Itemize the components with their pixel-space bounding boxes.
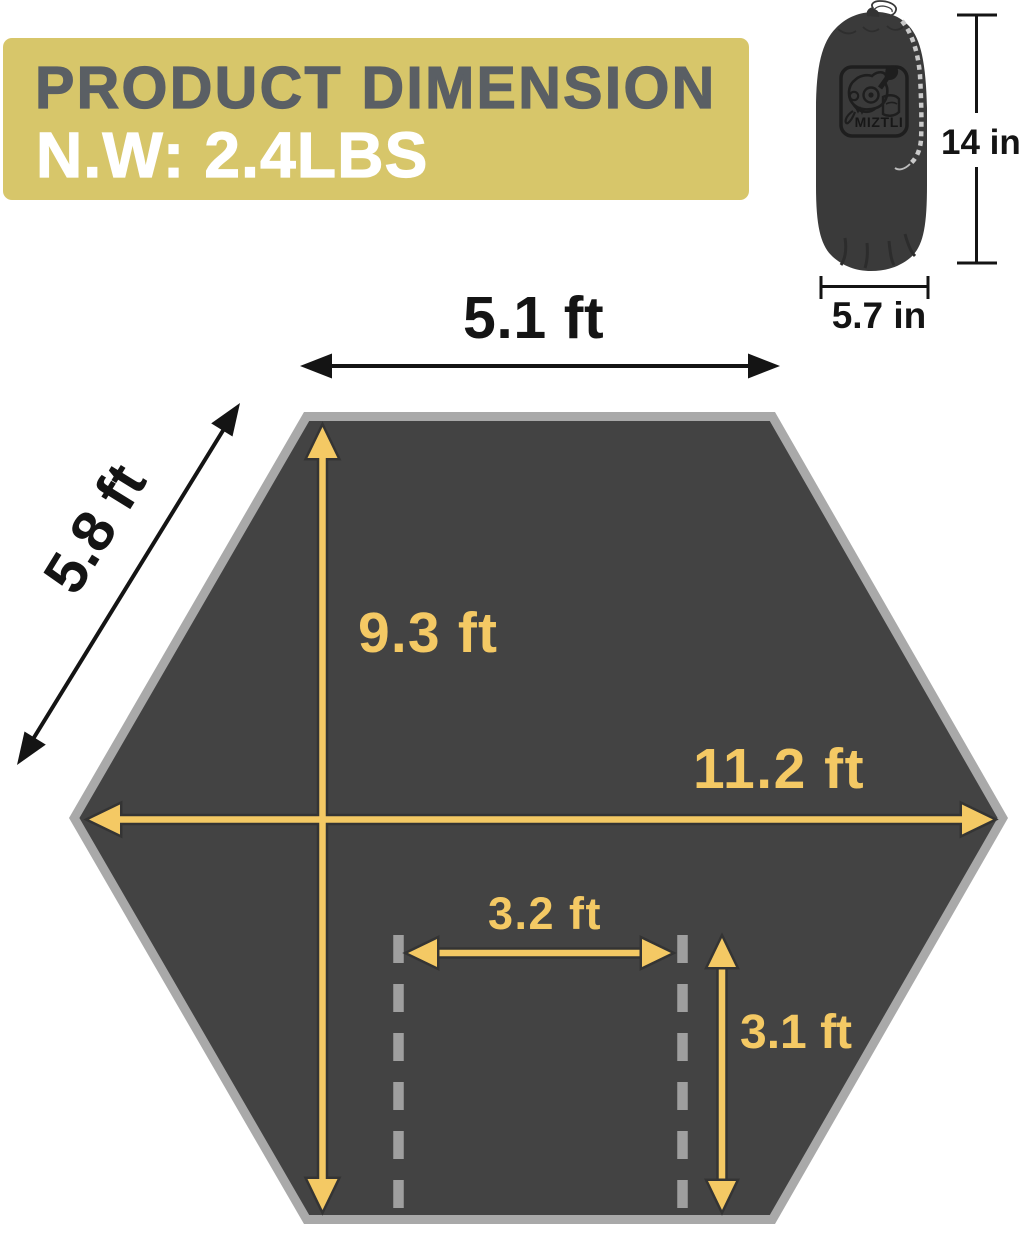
svg-text:5.8 ft: 5.8 ft: [31, 453, 159, 605]
svg-text:5.1 ft: 5.1 ft: [463, 285, 604, 351]
svg-text:9.3 ft: 9.3 ft: [358, 601, 498, 665]
svg-text:3.1 ft: 3.1 ft: [740, 1006, 852, 1059]
svg-text:3.2 ft: 3.2 ft: [488, 888, 602, 939]
svg-text:14 in: 14 in: [941, 123, 1021, 162]
svg-text:11.2 ft: 11.2 ft: [693, 737, 865, 801]
svg-text:N.W: 2.4LBS: N.W: 2.4LBS: [36, 119, 429, 191]
svg-text:PRODUCT DIMENSION: PRODUCT DIMENSION: [35, 55, 717, 121]
svg-text:MIZTLI: MIZTLI: [855, 114, 904, 130]
svg-text:5.7 in: 5.7 in: [832, 295, 927, 336]
